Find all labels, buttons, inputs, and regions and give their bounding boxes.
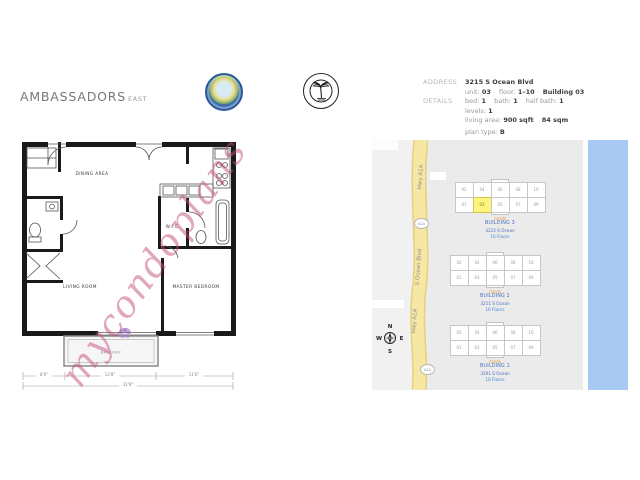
unit-cell: 08	[504, 325, 523, 341]
levels-line: levels: 1	[465, 107, 493, 117]
building-2-caption: condo BUILDING 2 3211 S Ocean 10 Floors	[450, 289, 540, 312]
unit-cell: 02	[455, 182, 474, 198]
route-shield-icon: A1A	[420, 364, 435, 375]
unit-cell: 04	[473, 182, 492, 198]
unit-cell: 10	[522, 255, 541, 271]
living-area-sqm: 84 sqm	[542, 116, 569, 124]
room-label-dining: DINING AREA	[76, 171, 109, 177]
unit-cell: 09	[522, 270, 541, 286]
room-label-master: MASTER BEDROOM	[172, 284, 219, 290]
unit-cell: 07	[504, 340, 523, 356]
beach-strip	[583, 140, 588, 390]
compass-w: W	[376, 336, 382, 342]
dim-segment-2: 12'8"	[105, 372, 116, 377]
unit-cell: 02	[450, 255, 469, 271]
side-road-west	[372, 300, 404, 308]
floorplan-drawing: 8'0" 12'8" 11'6" 31'8" DINING AREA W.I.C…	[20, 140, 240, 390]
unit-cell: 06	[491, 182, 510, 198]
dim-segment-1: 8'0"	[40, 372, 48, 377]
doors-windows-fixtures	[26, 144, 230, 335]
unit-cell: 10	[522, 325, 541, 341]
driveway-stub	[430, 172, 446, 180]
unit-cell: 04	[468, 255, 487, 271]
bath-count: 1	[513, 97, 518, 105]
unit-cell: 03	[468, 270, 487, 286]
unit-cell-highlighted-03[interactable]: 03	[473, 197, 492, 213]
unit-cell: 05	[486, 270, 505, 286]
unit-cell: 01	[450, 340, 469, 356]
unit-cell: 05	[491, 197, 510, 213]
unit-number: 03	[482, 88, 491, 96]
unit-cell: 05	[486, 340, 505, 356]
dim-segment-3: 11'6"	[189, 372, 200, 377]
room-label-wic: W.I.C	[166, 224, 179, 230]
unit-floor-line: unit: 03 floor: 1–10 Building 03	[465, 88, 584, 98]
site-map: Hwy A1A S Ocean Blvd Hwy A1A A1A A1A 02 …	[372, 140, 628, 390]
bed-bath-line: bed: 1 bath: 1 half bath: 1	[465, 97, 564, 107]
building-3-caption: condo BUILDING 3 3215 S Ocean 10 Floors	[455, 216, 545, 239]
room-label-balcony: BALCONY	[101, 351, 121, 355]
unit-cell: 03	[468, 340, 487, 356]
unit-cell: 09	[527, 197, 546, 213]
living-area-line: living area: 900 sqft 84 sqm	[465, 116, 568, 126]
living-area-sqft: 900 sqft	[503, 116, 533, 124]
floor-range: 1–10	[518, 88, 535, 96]
details-label: DETAILS	[423, 97, 465, 107]
outer-walls	[22, 142, 236, 336]
street-address: 3215 S Ocean Blvd	[465, 78, 533, 86]
half-bath-count: 1	[559, 97, 564, 105]
palm-tree-seal-icon	[303, 73, 339, 109]
unit-cell: 10	[527, 182, 546, 198]
unit-cell: 01	[455, 197, 474, 213]
compass-e: E	[400, 336, 404, 342]
plan-type-line: plan type: B	[465, 128, 505, 138]
building-1-caption: condo BUILDING 1 3201 S Ocean 10 Floors	[450, 359, 540, 382]
floorplan-svg: 8'0" 12'8" 11'6" 31'8" DINING AREA W.I.C…	[20, 140, 240, 390]
building-2-floors-link[interactable]: 10 Floors	[450, 307, 540, 313]
building-3-floors-link[interactable]: 10 Floors	[455, 234, 545, 240]
building-name-suffix: EAST	[128, 95, 147, 103]
building-1-footprint: 02 04 06 08 10 01 03 05 07 09	[450, 325, 540, 355]
room-label-living: LIVING ROOM	[63, 284, 97, 290]
building-3-footprint: 02 04 06 08 10 01 03 05 07 09	[455, 182, 545, 212]
floorplan-page: AMBASSADORSEAST ADDRESS 3215 S Ocean Blv…	[0, 0, 640, 480]
address-label: ADDRESS	[423, 78, 465, 88]
building-1-floors-link[interactable]: 10 Floors	[450, 377, 540, 383]
unit-info-panel: ADDRESS 3215 S Ocean Blvd unit: 03 floor…	[423, 78, 584, 137]
unit-cell: 04	[468, 325, 487, 341]
palm-tree-icon	[306, 76, 336, 106]
bed-count: 1	[482, 97, 487, 105]
compass-n: N	[388, 324, 393, 330]
unit-cell: 09	[522, 340, 541, 356]
building-2-footprint: 02 04 06 08 10 01 03 05 07 09	[450, 255, 540, 285]
unit-cell: 07	[504, 270, 523, 286]
unit-cell: 06	[486, 255, 505, 271]
unit-cell: 08	[509, 182, 528, 198]
unit-cell: 02	[450, 325, 469, 341]
town-seal-icon	[205, 73, 243, 111]
ocean-water	[588, 140, 628, 390]
unit-cell: 01	[450, 270, 469, 286]
side-road-top	[372, 140, 398, 150]
route-shield-icon: A1A	[414, 218, 429, 229]
plan-type-value: B	[500, 128, 505, 136]
compass-s: S	[388, 349, 392, 355]
compass-rose-icon: N W E S	[376, 320, 406, 356]
levels-count: 1	[488, 107, 493, 115]
unit-cell: 08	[504, 255, 523, 271]
building-name: AMBASSADORS	[20, 89, 126, 104]
unit-cell: 06	[486, 325, 505, 341]
page-title: AMBASSADORSEAST	[20, 89, 147, 104]
building-number: Building 03	[543, 88, 585, 96]
dim-total: 31'8"	[123, 382, 134, 387]
unit-cell: 07	[509, 197, 528, 213]
